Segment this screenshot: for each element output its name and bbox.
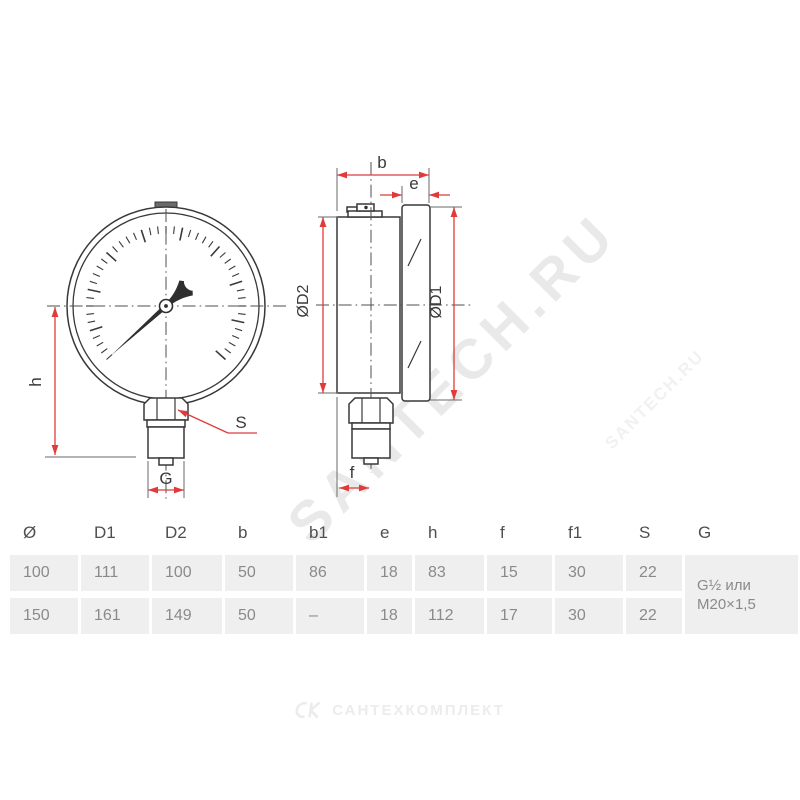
table-cell: 17 <box>487 598 552 634</box>
footer-brand: САНТЕХКОМПЛЕКТ <box>0 700 800 720</box>
santehkomplekt-logo-icon <box>295 700 323 720</box>
front-view: h G S <box>26 202 287 499</box>
e-label: e <box>409 174 418 193</box>
side-view: b e ØD2 ØD1 f <box>295 153 472 497</box>
col-header: h <box>415 518 484 548</box>
h-label: h <box>26 377 45 386</box>
col-header: S <box>626 518 682 548</box>
table-cell: 22 <box>626 598 682 634</box>
footer-brand-text: САНТЕХКОМПЛЕКТ <box>332 702 505 719</box>
table-cell: – <box>296 598 364 634</box>
side-top-plug <box>348 211 382 217</box>
dimensions-table: Ø D1 D2 b b1 e h f f1 S G 100 111 100 50… <box>10 518 798 634</box>
table-cell: 100 <box>10 555 78 591</box>
table-cell: 100 <box>152 555 222 591</box>
side-hex-nut <box>349 398 393 423</box>
table-cell: 83 <box>415 555 484 591</box>
side-thread-stem <box>352 429 390 458</box>
col-header: b1 <box>296 518 364 548</box>
col-header: D1 <box>81 518 149 548</box>
table-cell: 15 <box>487 555 552 591</box>
col-header: Ø <box>10 518 78 548</box>
g-thread-line1: G½ или <box>697 576 798 595</box>
table-cell: 30 <box>555 598 623 634</box>
col-header: f1 <box>555 518 623 548</box>
s-label: S <box>235 413 246 432</box>
front-hex-nut <box>144 398 188 420</box>
table-cell: 18 <box>367 598 412 634</box>
f-label: f <box>350 463 355 482</box>
g-thread-line2: M20×1,5 <box>697 595 798 614</box>
side-stem-nub <box>364 458 378 464</box>
table-cell: 50 <box>225 555 293 591</box>
d2-label: ØD2 <box>295 284 312 317</box>
front-collar <box>147 420 185 427</box>
table-cell: 30 <box>555 555 623 591</box>
b-label: b <box>377 153 386 172</box>
table-cell: 111 <box>81 555 149 591</box>
table-cell: 150 <box>10 598 78 634</box>
col-header: D2 <box>152 518 222 548</box>
col-header: b <box>225 518 293 548</box>
table-cell: 50 <box>225 598 293 634</box>
col-header: f <box>487 518 552 548</box>
side-bezel <box>402 205 430 401</box>
table-cell: 161 <box>81 598 149 634</box>
g-thread-cell: G½ или M20×1,5 <box>685 555 798 634</box>
table-cell: 18 <box>367 555 412 591</box>
g-label: G <box>159 469 172 488</box>
col-header: e <box>367 518 412 548</box>
front-stem-nub <box>159 458 173 465</box>
table-cell: 149 <box>152 598 222 634</box>
table-cell: 112 <box>415 598 484 634</box>
front-thread-stem <box>148 427 184 458</box>
side-collar <box>352 423 390 429</box>
table-cell: 22 <box>626 555 682 591</box>
gauge-technical-drawing: h G S b <box>0 0 800 520</box>
d1-label: ØD1 <box>428 285 445 318</box>
needle-hub-dot <box>164 304 168 308</box>
col-header: G <box>685 518 798 548</box>
table-cell: 86 <box>296 555 364 591</box>
